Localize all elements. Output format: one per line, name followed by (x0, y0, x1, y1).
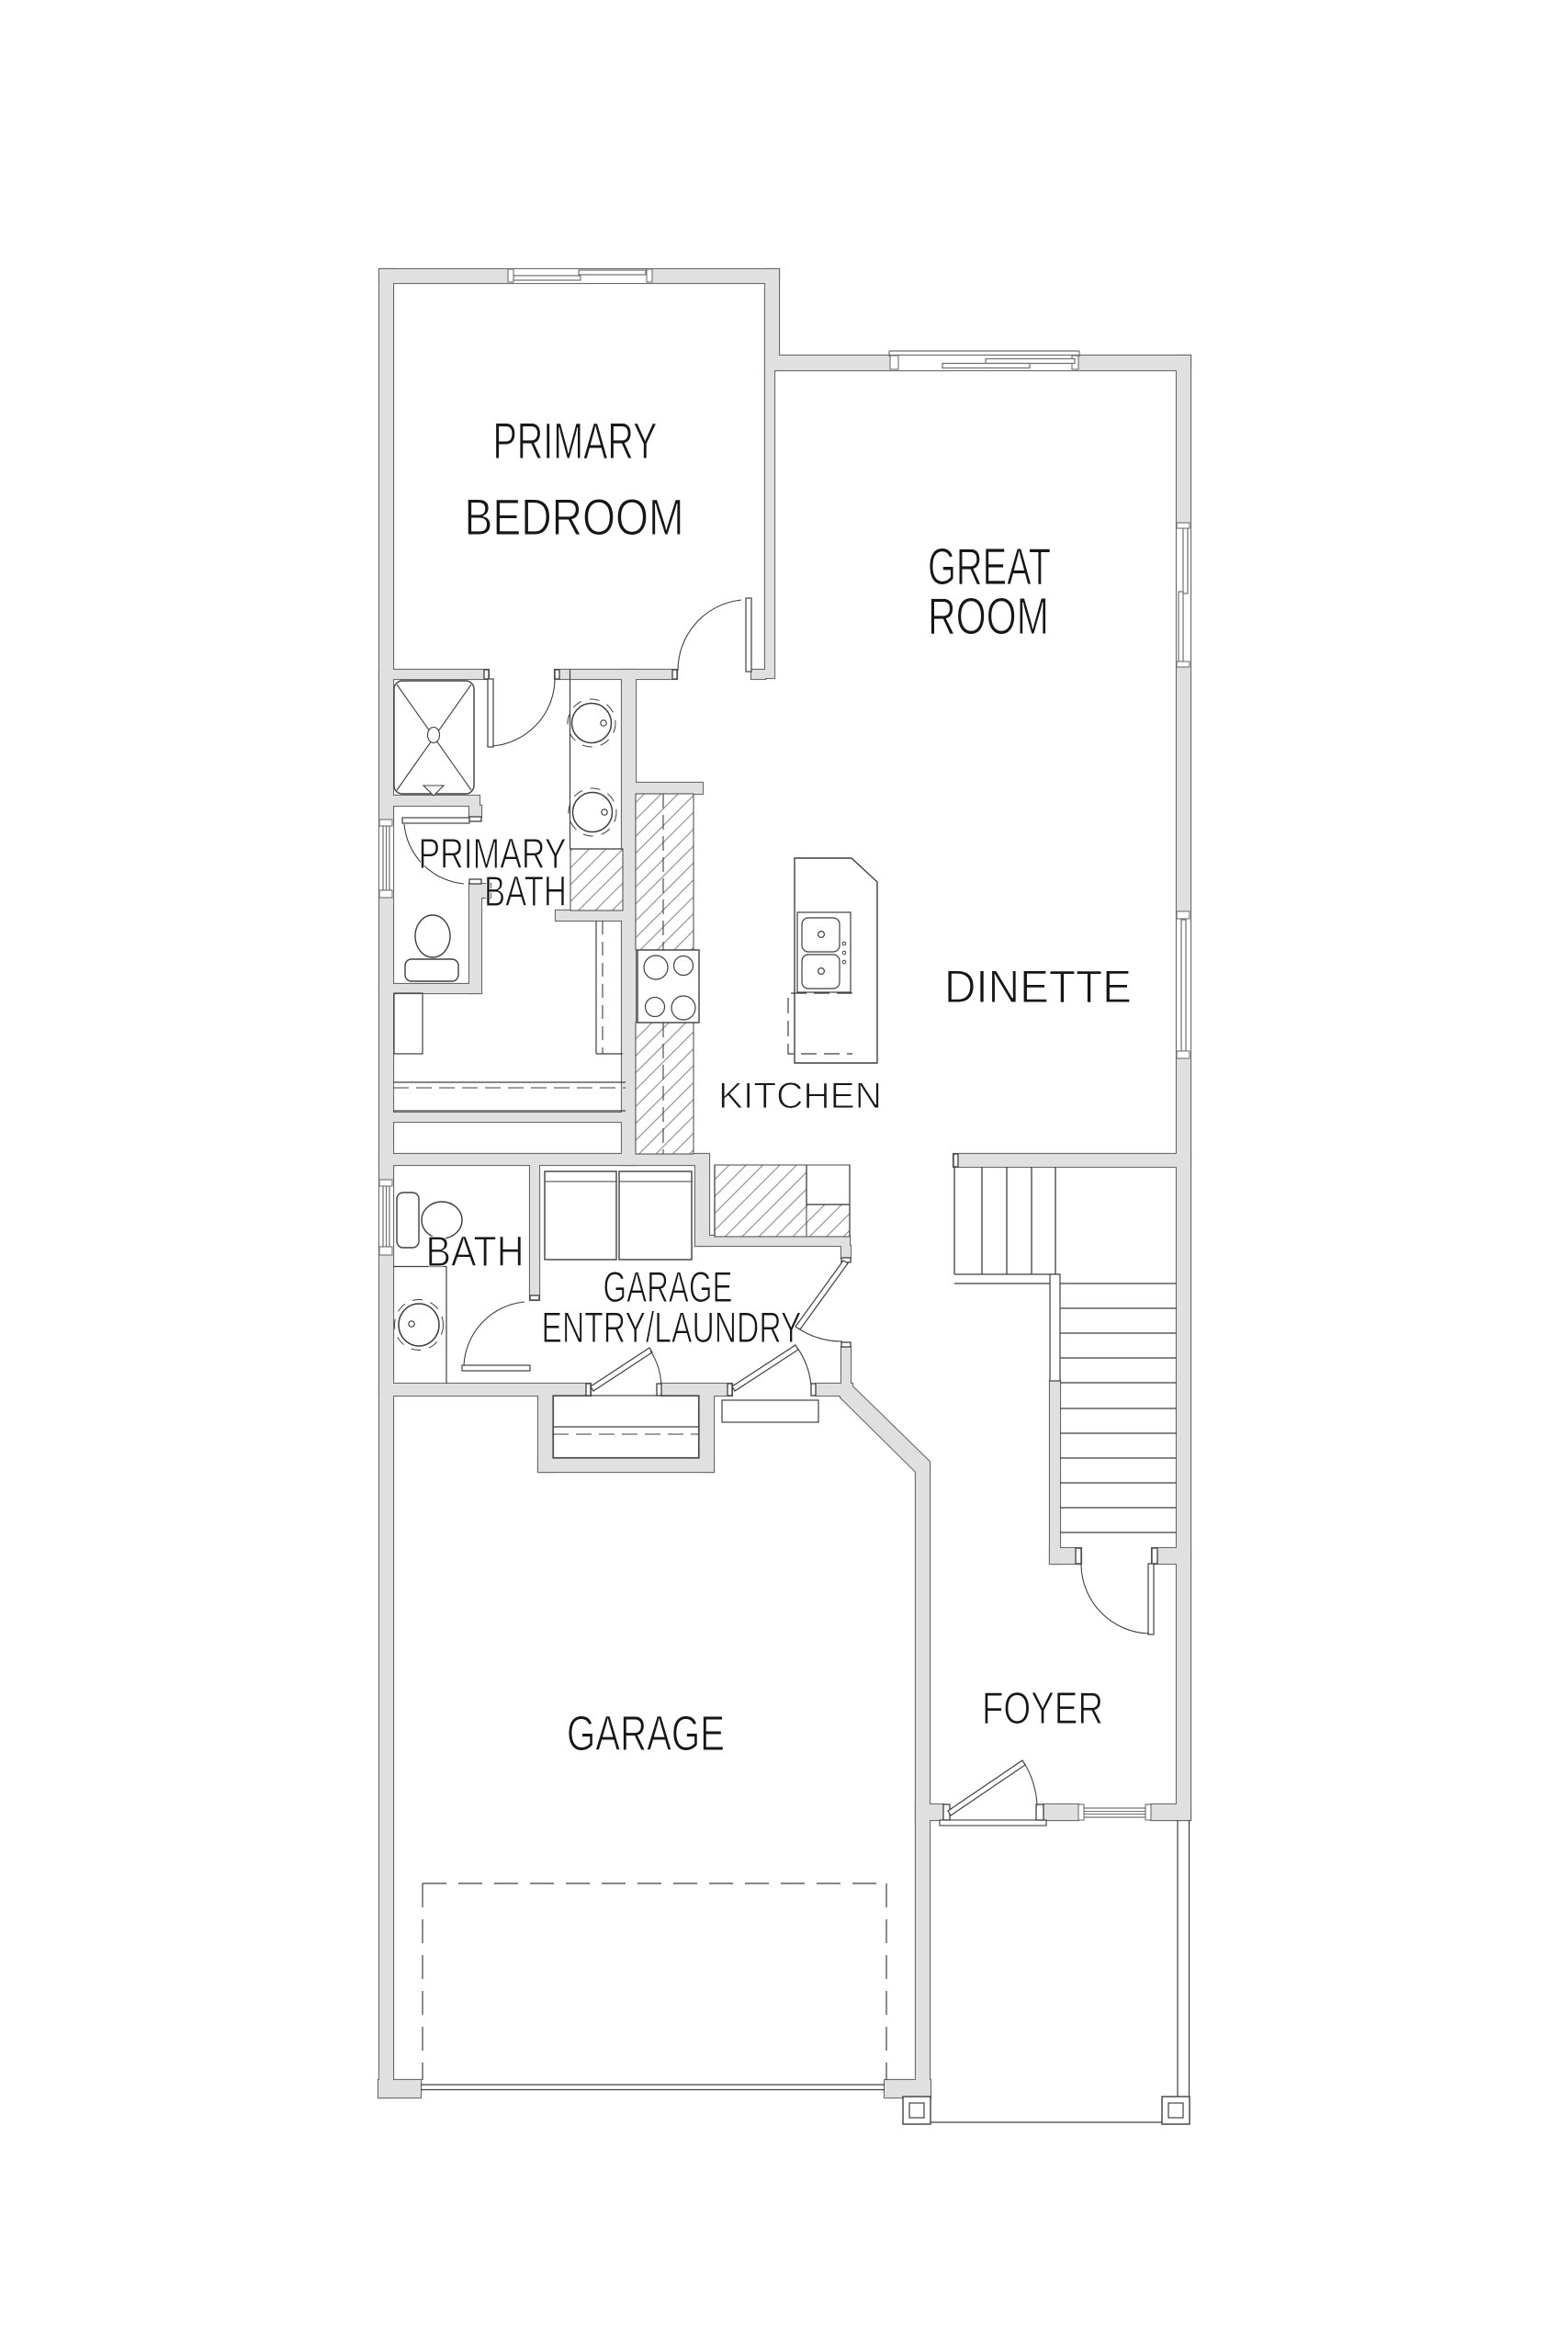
svg-text:PRIMARY: PRIMARY (493, 412, 658, 469)
svg-text:FOYER: FOYER (982, 1684, 1103, 1734)
svg-text:ENTRY/LAUNDRY: ENTRY/LAUNDRY (542, 1303, 802, 1351)
svg-text:BATH: BATH (484, 867, 567, 915)
svg-text:DINETTE: DINETTE (944, 961, 1132, 1012)
svg-text:BATH: BATH (426, 1227, 525, 1275)
svg-text:BEDROOM: BEDROOM (465, 488, 684, 546)
svg-text:ROOM: ROOM (928, 587, 1049, 646)
svg-text:GARAGE: GARAGE (567, 1706, 725, 1761)
svg-text:KITCHEN: KITCHEN (718, 1076, 882, 1116)
